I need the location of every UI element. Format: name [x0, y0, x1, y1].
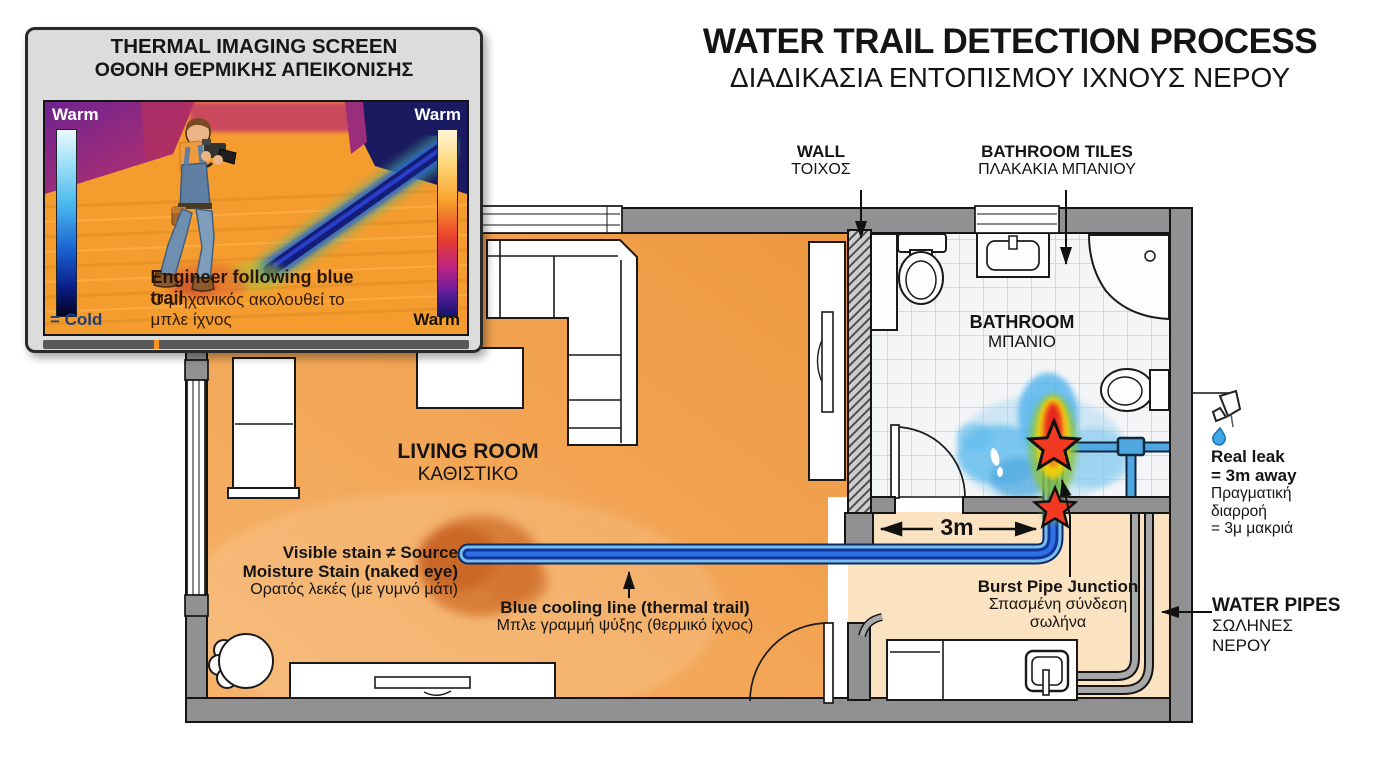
thermal-caption-greek: Ο μηχανικός ακολουθεί το μπλε ίχνος — [151, 290, 362, 330]
page-title-greek: ΔΙΑΔΙΚΑΣΙΑ ΕΝΤΟΠΙΣΜΟΥ ΙΧΝΟΥΣ ΝΕΡΟΥ — [730, 62, 1290, 94]
warm-label-bottom-right: Warm — [413, 310, 460, 330]
cooling-line-label: Blue cooling line (thermal trail) Μπλε γ… — [497, 598, 754, 635]
bathroom-label: BATHROOM ΜΠΑΝΙΟ — [970, 312, 1075, 352]
dimension-3m-value: 3m — [940, 514, 973, 540]
water-drop-icon — [1213, 428, 1225, 445]
visible-stain-label: Visible stain ≠ Source Moisture Stain (n… — [243, 543, 458, 599]
hatched-wall — [848, 230, 871, 513]
thermal-scale-cold-bar — [56, 129, 77, 317]
water-pipes-label: WATER PIPES ΣΩΛΗΝΕΣ ΝΕΡΟΥ — [1212, 595, 1340, 655]
burst-pipe-label: Burst Pipe Junction Σπασμένη σύνδεση σωλ… — [978, 577, 1139, 632]
page-title: WATER TRAIL DETECTION PROCESS — [703, 22, 1317, 62]
thermal-image: Warm Warm = Cold Warm Engineer following… — [43, 100, 469, 336]
warm-label-top-right: Warm — [414, 105, 461, 125]
diagram-canvas: WATER TRAIL DETECTION PROCESS ΔΙΑΔΙΚΑΣΙΑ… — [0, 0, 1376, 768]
wall-label: WALL ΤΟΙΧΟΣ — [791, 142, 850, 179]
thermal-screen: THERMAL IMAGING SCREEN ΟΘΟΝΗ ΘΕΡΜΙΚΗΣ ΑΠ… — [25, 27, 483, 353]
cold-label: = Cold — [50, 310, 102, 330]
faucet-icon — [1213, 391, 1240, 427]
thermal-screen-title: THERMAL IMAGING SCREEN ΟΘΟΝΗ ΘΕΡΜΙΚΗΣ ΑΠ… — [28, 35, 480, 82]
real-leak-label: Real leak = 3m away Πραγματική διαρροή =… — [1211, 447, 1297, 538]
warm-label-top-left: Warm — [52, 105, 99, 125]
bathroom-tiles-label: BATHROOM TILES ΠΛΑΚΑΚΙΑ ΜΠΑΝΙΟΥ — [978, 142, 1136, 179]
living-room-label: LIVING ROOM ΚΑΘΙΣΤΙΚΟ — [397, 440, 538, 485]
thermal-scale-warm-bar — [437, 129, 458, 317]
scrubber-position-tick[interactable] — [154, 340, 159, 349]
thermal-scrubber-bar[interactable] — [43, 340, 469, 349]
